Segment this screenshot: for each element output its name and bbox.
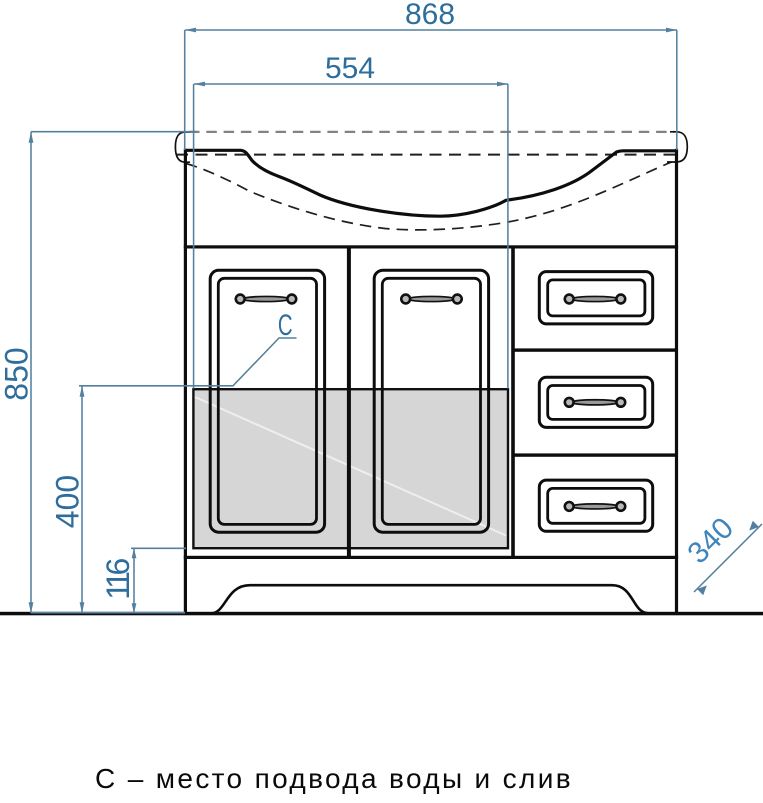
svg-text:850: 850	[0, 347, 35, 400]
svg-text:400: 400	[50, 475, 86, 528]
svg-text:868: 868	[405, 0, 455, 31]
svg-text:554: 554	[325, 52, 375, 85]
svg-text:С: С	[278, 309, 293, 342]
svg-text:С – место подвода воды и слив: С – место подвода воды и слив	[95, 763, 573, 794]
svg-text:116: 116	[100, 559, 136, 600]
